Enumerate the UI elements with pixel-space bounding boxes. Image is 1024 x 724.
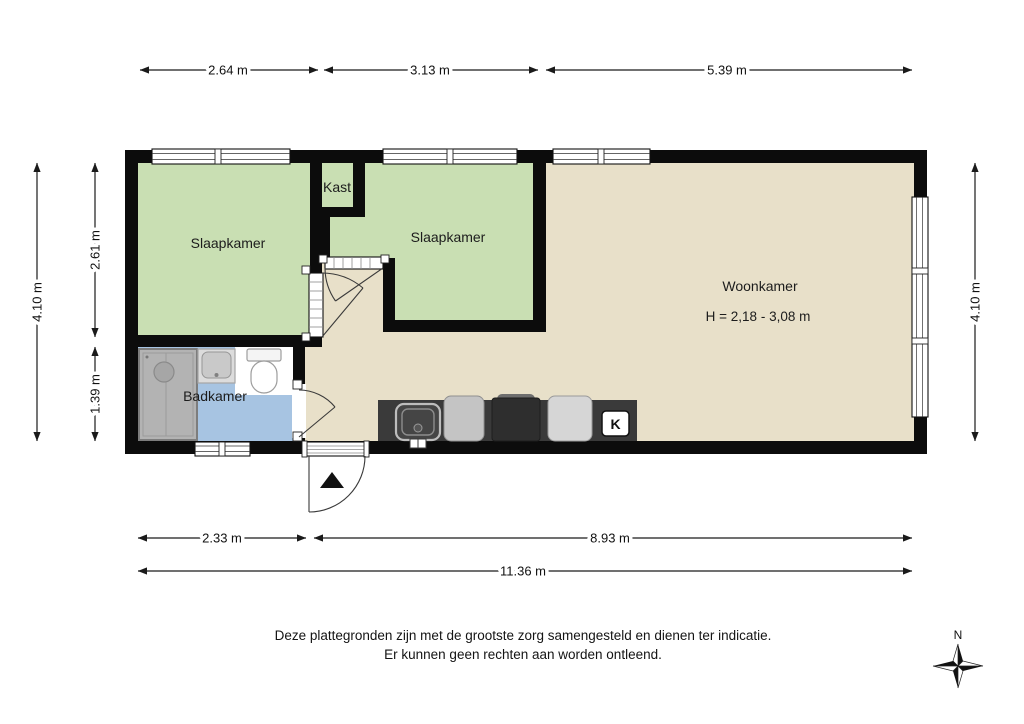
- label-bathroom: Badkamer: [183, 388, 247, 404]
- boiler-label: K: [610, 416, 620, 432]
- floor-plan-page: K Slaapkamer Kast Slaapkamer Woonkamer H…: [0, 0, 1024, 724]
- disclaimer-line-2: Er kunnen geen rechten aan worden ontlee…: [384, 647, 662, 662]
- label-closet: Kast: [323, 179, 351, 195]
- wall-bedroom-mid-right: [533, 163, 546, 332]
- dim-top-3: 5.39 m: [707, 63, 747, 78]
- kitchen-appliance-2: [548, 396, 592, 441]
- dim-left-lower: 1.39 m: [88, 374, 103, 414]
- window-bottom-bathroom: [195, 442, 250, 456]
- kitchen: K: [378, 394, 637, 448]
- wall-bedroom-mid-bottom: [383, 320, 546, 332]
- window-right: [912, 197, 928, 417]
- dim-top-2: 3.13 m: [410, 63, 450, 78]
- dim-bottom-total: 11.36 m: [500, 564, 546, 579]
- boiler-badge: K: [602, 411, 629, 436]
- floor-plan-canvas: K Slaapkamer Kast Slaapkamer Woonkamer H…: [0, 0, 1024, 724]
- dim-right-total: 4.10 m: [968, 282, 983, 322]
- dim-bottom-2: 8.93 m: [590, 531, 630, 546]
- compass-north-label: N: [954, 628, 963, 642]
- dim-left-total: 4.10 m: [30, 282, 45, 322]
- dim-bottom-1: 2.33 m: [202, 531, 242, 546]
- washbasin: [198, 349, 235, 383]
- window-top-2: [383, 149, 517, 164]
- label-living-room: Woonkamer: [722, 278, 798, 294]
- wall-closet-bottom: [310, 207, 365, 217]
- bedroom-mid-floor-a: [363, 163, 533, 223]
- label-bedroom-left: Slaapkamer: [191, 235, 266, 251]
- door-entrance: [302, 441, 369, 512]
- window-top-1: [152, 149, 290, 164]
- shower-drain: [154, 362, 174, 382]
- disclaimer-line-1: Deze plattegronden zijn met de grootste …: [275, 628, 772, 643]
- label-ceiling-height: H = 2,18 - 3,08 m: [706, 309, 811, 324]
- dim-top-1: 2.64 m: [208, 63, 248, 78]
- wall-bedroom-left-bottom: [125, 335, 322, 347]
- wall-left: [125, 150, 138, 454]
- dim-left-upper: 2.61 m: [88, 230, 103, 270]
- kitchen-cooktop: [492, 398, 540, 441]
- compass-icon: N: [933, 628, 983, 688]
- toilet: [247, 349, 281, 393]
- window-top-3: [553, 149, 650, 164]
- entrance-arrow-icon: [320, 472, 344, 488]
- disclaimer: Deze plattegronden zijn met de grootste …: [275, 628, 772, 662]
- label-bedroom-mid: Slaapkamer: [411, 229, 486, 245]
- kitchen-appliance-1: [444, 396, 484, 441]
- washbasin-tap: [215, 373, 219, 377]
